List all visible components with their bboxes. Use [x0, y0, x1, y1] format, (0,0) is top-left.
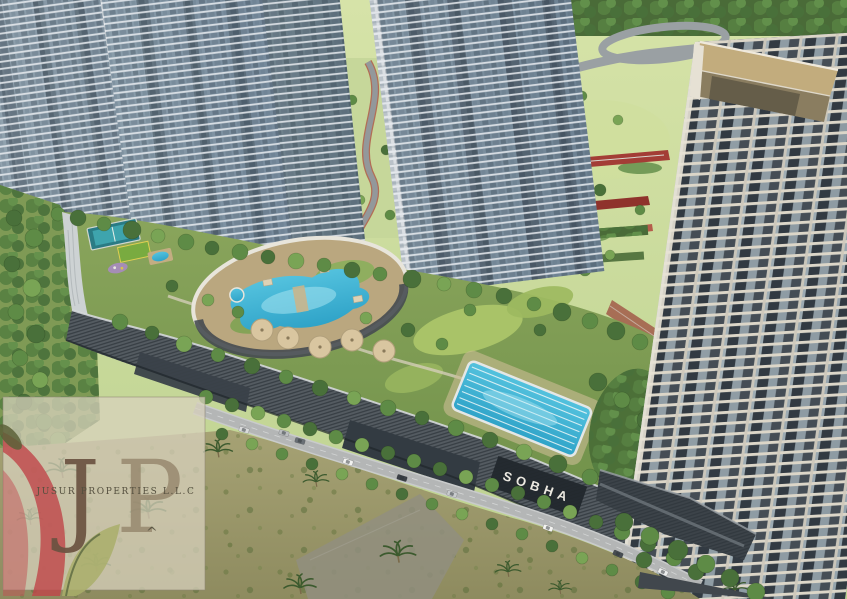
render-canvas: SOBHA: [0, 0, 847, 599]
tower-4: [367, 0, 605, 295]
watermark: J P JUSUR PROPERTIES L.L.C ^: [0, 397, 205, 596]
caret-mark: ^: [146, 525, 158, 541]
aerial-render: SOBHA: [0, 0, 847, 599]
company-name: JUSUR PROPERTIES L.L.C: [36, 487, 196, 497]
